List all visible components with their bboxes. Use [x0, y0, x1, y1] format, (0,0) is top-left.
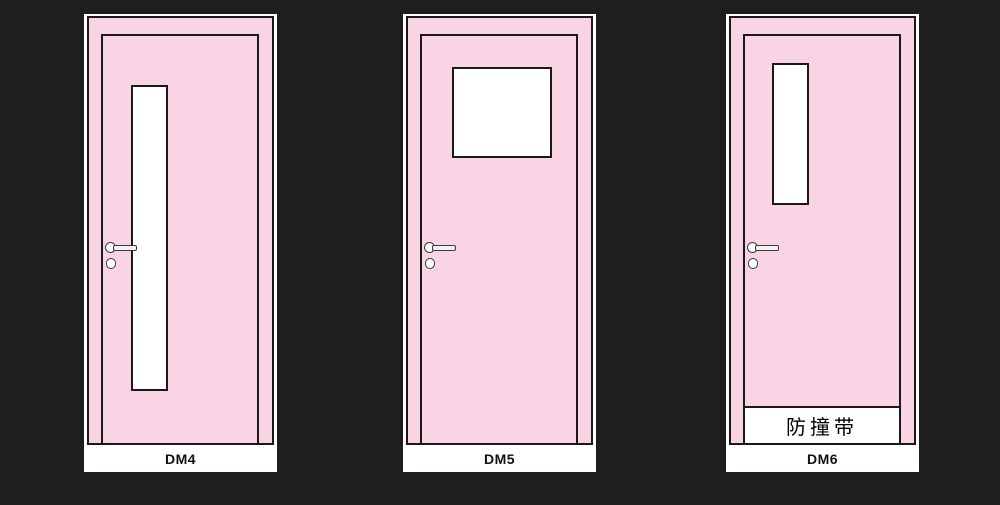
anti-collision-strip: 防撞带 — [745, 406, 899, 443]
door-leaf — [101, 34, 259, 443]
door-leaf: 防撞带 — [743, 34, 901, 443]
handle-lever-icon — [432, 245, 456, 251]
door-frame: 防撞带 — [729, 16, 916, 445]
door-window — [452, 67, 552, 158]
door-label: DM6 — [726, 445, 919, 472]
door-handle — [423, 240, 475, 274]
anti-collision-strip-label: 防撞带 — [786, 411, 858, 440]
door-label: DM4 — [84, 445, 277, 472]
door-handle — [746, 240, 798, 274]
lock-cylinder-icon — [748, 258, 759, 269]
lock-cylinder-icon — [106, 258, 117, 269]
door-handle — [104, 240, 156, 274]
door-card-dm4: DM4 — [84, 14, 277, 472]
lock-cylinder-icon — [425, 258, 436, 269]
door-card-dm5: DM5 — [403, 14, 596, 472]
door-window — [131, 85, 168, 391]
handle-lever-icon — [113, 245, 137, 251]
door-window — [772, 63, 809, 205]
door-card-dm6: 防撞带 DM6 — [726, 14, 919, 472]
door-frame — [87, 16, 274, 445]
handle-lever-icon — [755, 245, 779, 251]
door-leaf — [420, 34, 578, 443]
door-label: DM5 — [403, 445, 596, 472]
door-frame — [406, 16, 593, 445]
